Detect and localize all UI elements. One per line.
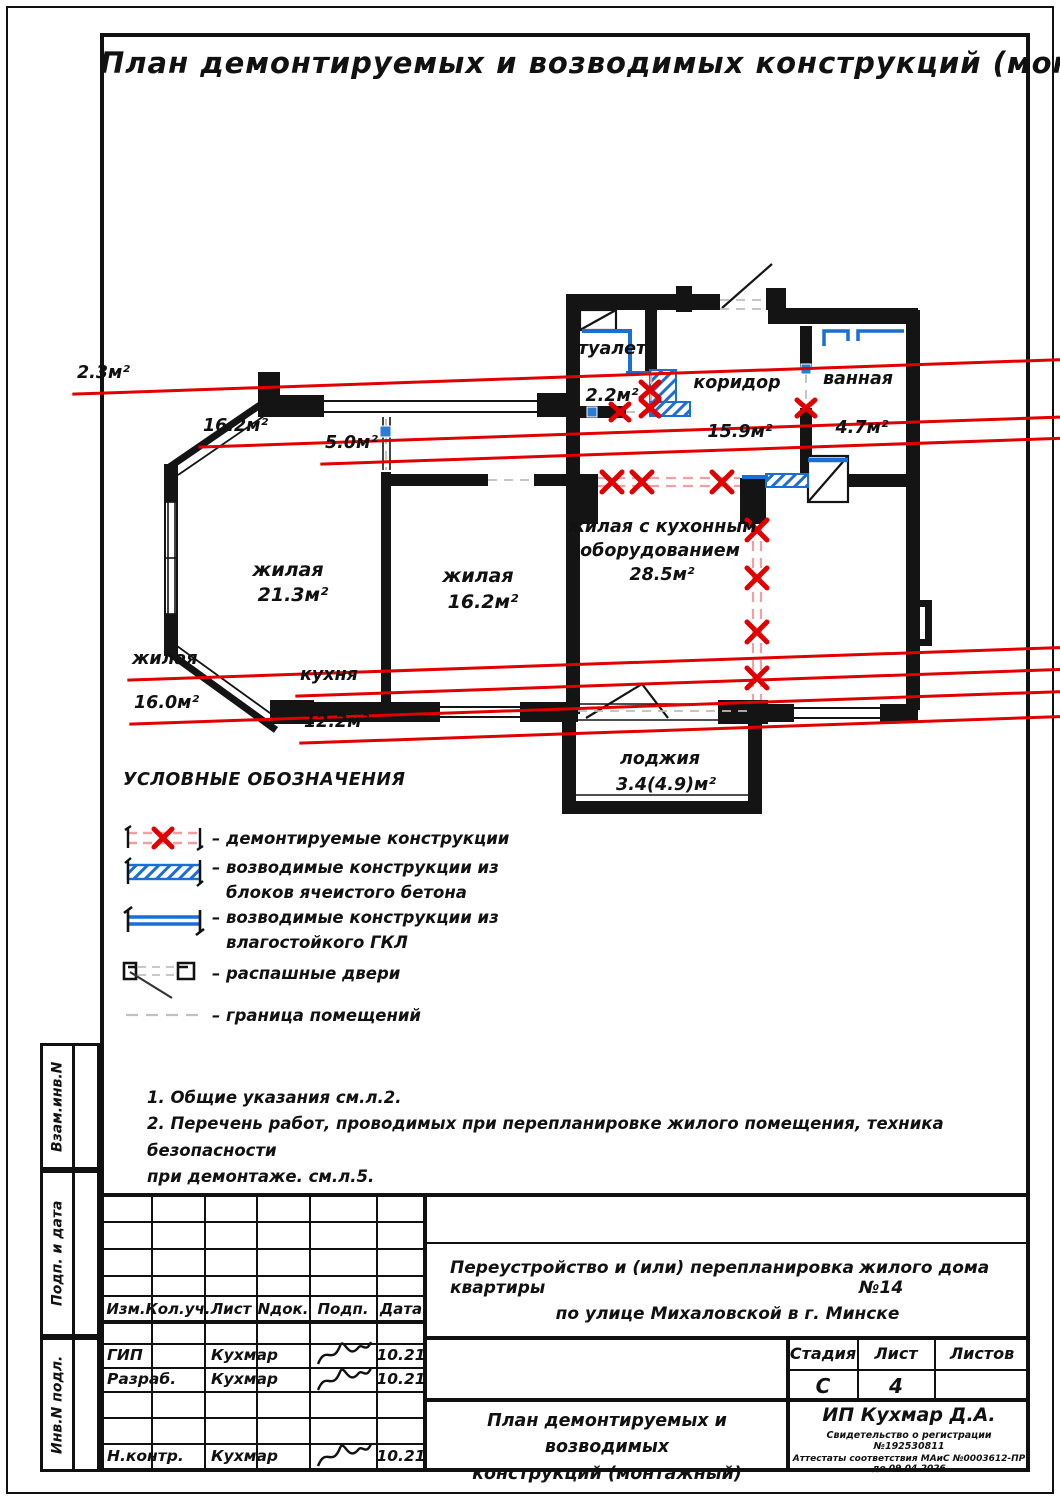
col-ndok: Nдок. <box>258 1300 309 1318</box>
row-nkontr-name: Кухмар <box>211 1447 278 1465</box>
sidebar-divider <box>72 1173 75 1334</box>
project-line1b: жилого дома №14 <box>859 1258 1005 1298</box>
row-razrab-role: Разраб. <box>107 1370 176 1388</box>
sidebar-divider <box>72 1340 75 1469</box>
drawing-title-line1: План демонтируемых и возводимых <box>430 1408 784 1461</box>
sheet-value: 4 <box>889 1374 903 1398</box>
col-list: Лист <box>211 1300 252 1318</box>
room-tualet-old-area: 2.3м² <box>77 364 1060 383</box>
legend-aerated-concrete-icon <box>120 856 210 888</box>
sidebar-label-podp: Подп. и дата <box>43 1173 72 1334</box>
room-zhilaya1-area: 21.3м² <box>258 585 329 606</box>
col-koluch: Кол.уч. <box>145 1300 210 1318</box>
row-razrab-name: Кухмар <box>211 1370 278 1388</box>
legend-aerated-concrete-label2: блоков ячеистого бетона <box>226 881 467 905</box>
room-zhilaya-kitchen-old-area: 16.0м² <box>134 694 1060 713</box>
drawing-title-line2: конструкций (монтажный) <box>430 1461 784 1487</box>
company-cert1: Свидетельство о регистрации №192530811 <box>792 1430 1026 1452</box>
page-title: План демонтируемых и возводимых конструк… <box>100 46 1030 80</box>
project-line2: по улице Михаловской в г. Минске <box>430 1304 1025 1324</box>
stage-label: Стадия <box>790 1344 856 1363</box>
project-name-cell: Переустройство и (или) перепланировка кв… <box>430 1248 1025 1334</box>
floor-plan <box>145 245 945 845</box>
room-zhilaya-kitchen-area: 28.5м² <box>629 566 694 585</box>
room-zhilaya-kitchen-name2: оборудованием <box>580 542 740 561</box>
legend-swing-doors-label: – распашные двери <box>212 962 400 986</box>
row-razrab-date: 10.21 <box>376 1370 425 1388</box>
sidebar-divider <box>72 1046 75 1167</box>
col-podp: Подп. <box>317 1300 368 1318</box>
sidebar-label-inv: Инв.N подл. <box>43 1340 72 1469</box>
company-cell: ИП Кухмар Д.А. Свидетельство о регистрац… <box>792 1404 1026 1474</box>
signature-nkontr <box>314 1438 374 1472</box>
legend-title: УСЛОВНЫЕ ОБОЗНАЧЕНИЯ <box>123 770 406 790</box>
room-zhilaya-kitchen-name1: жилая с кухонным <box>567 518 756 537</box>
legend-gypsum-label1: – возводимые конструкции из <box>212 906 499 930</box>
room-vannaya-new-area: 4.7м² <box>836 419 889 438</box>
stage-value: С <box>816 1374 831 1398</box>
sheets-label: Листов <box>950 1344 1014 1363</box>
room-zhilaya2-name: жилая <box>442 566 513 587</box>
room-vannaya-old-area: 5.0м² <box>325 434 1060 453</box>
room-kukhnya-name: кухня <box>300 666 1060 685</box>
col-data: Дата <box>380 1300 422 1318</box>
legend-demolished-icon <box>120 824 210 854</box>
note-1: 1. Общие указания см.л.2. <box>147 1085 1017 1111</box>
row-gip-role: ГИП <box>107 1346 143 1364</box>
general-notes: 1. Общие указания см.л.2. 2. Перечень ра… <box>147 1085 1017 1191</box>
room-tualet-name: туалет <box>578 340 646 359</box>
drawing-sheet: { "page_title": "План демонтируемых и во… <box>0 0 1060 1500</box>
room-vannaya-name: ванная <box>823 370 893 389</box>
company-cert2: Аттестаты соответствия МАиС №0003612-ПР … <box>792 1454 1026 1474</box>
legend-swing-doors-icon <box>120 958 210 1000</box>
legend-aerated-concrete-label1: – возводимые конструкции из <box>212 856 499 880</box>
sidebar-label-vzam: Взам.инв.N <box>43 1046 72 1167</box>
room-zhilaya2-area: 16.2м² <box>448 592 519 613</box>
room-lodzhiya-name: лоджия <box>620 750 700 769</box>
room-kukhnya-area: 12.2м² <box>304 713 1060 732</box>
project-line1a: Переустройство и (или) перепланировка кв… <box>450 1258 859 1298</box>
room-tualet-new-area: 2.2м² <box>586 387 639 406</box>
row-nkontr-date: 10.21 <box>376 1447 425 1465</box>
legend-gypsum-icon <box>120 906 210 936</box>
legend-room-boundary-icon <box>120 1002 210 1028</box>
row-gip-date: 10.21 <box>376 1346 425 1364</box>
room-zhilaya1-name: жилая <box>252 560 323 581</box>
drawing-title-cell: План демонтируемых и возводимых конструк… <box>430 1408 784 1487</box>
company-name: ИП Кухмар Д.А. <box>792 1404 1026 1426</box>
sidebar-cell-podp: Подп. и дата <box>40 1170 100 1337</box>
signature-razrab <box>314 1362 374 1396</box>
sidebar-cell-vzam: Взам.инв.N <box>40 1043 100 1170</box>
legend-gypsum-label2: влагостойкого ГКЛ <box>226 931 408 955</box>
col-izm: Изм. <box>106 1300 145 1318</box>
note-2: 2. Перечень работ, проводимых при перепл… <box>147 1111 1017 1164</box>
sidebar-cell-inv: Инв.N подл. <box>40 1337 100 1472</box>
room-lodzhiya-area: 3.4(4.9)м² <box>616 776 716 795</box>
row-gip-name: Кухмар <box>211 1346 278 1364</box>
row-nkontr-role: Н.контр. <box>107 1447 184 1465</box>
sheet-label: Лист <box>874 1344 917 1363</box>
note-2-cont: при демонтаже. см.л.5. <box>147 1164 1017 1190</box>
room-koridor-name: коридор <box>693 374 780 393</box>
legend-demolished-label: – демонтируемые конструкции <box>212 827 509 851</box>
legend-room-boundary-label: – граница помещений <box>212 1004 421 1028</box>
